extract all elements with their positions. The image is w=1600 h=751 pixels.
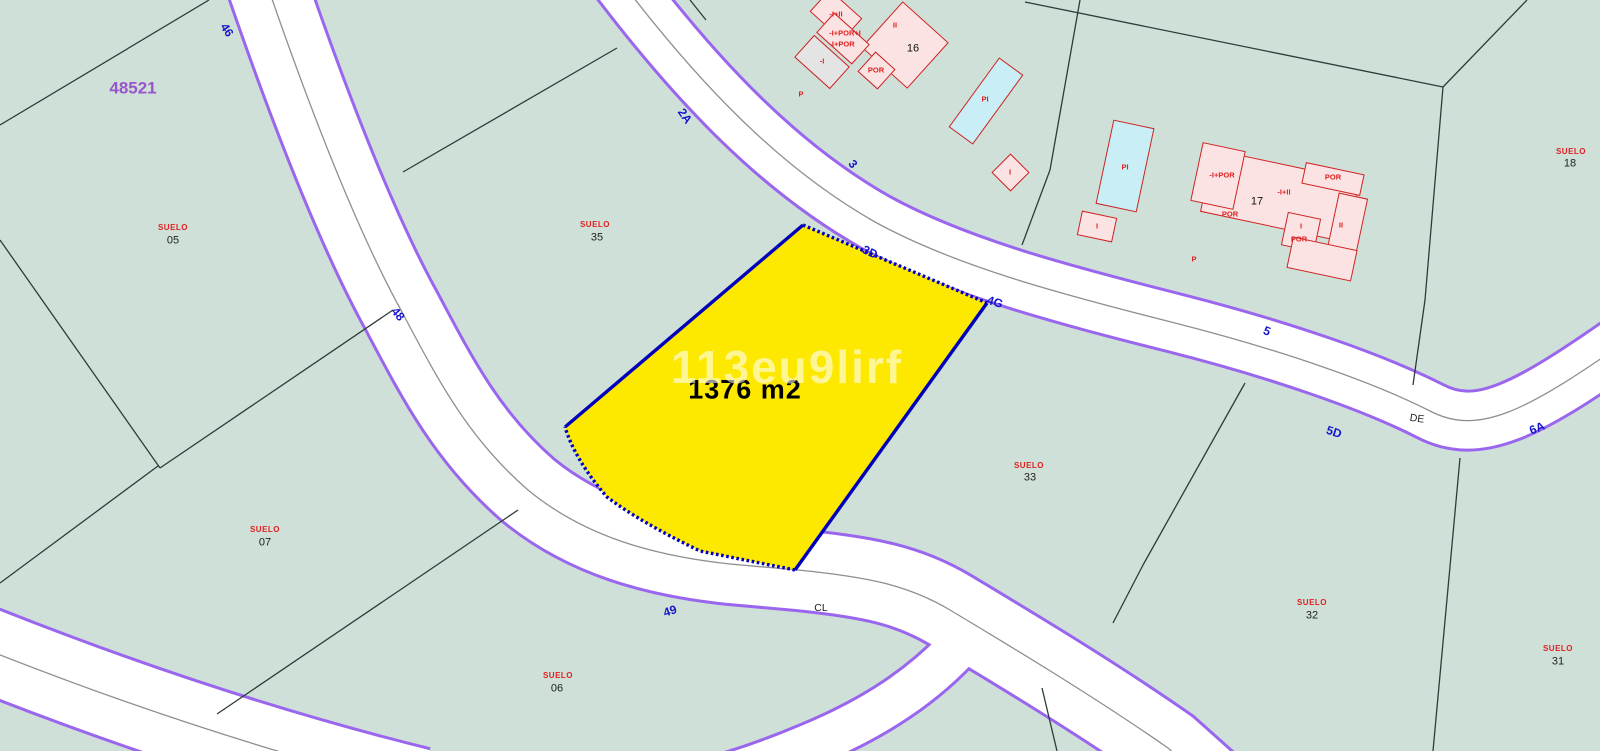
building-label: PI <box>981 95 988 103</box>
parcel-type: SUELO <box>1297 599 1327 607</box>
building-label: -I+POR+I <box>829 29 861 37</box>
building-label: -I+II <box>829 10 842 18</box>
watermark: 113eu9lirf <box>671 344 903 390</box>
parcel-number: 35 <box>591 233 603 244</box>
building-label: I <box>1009 168 1011 176</box>
building-label: II <box>1339 221 1343 229</box>
parcel-type: SUELO <box>1014 462 1044 470</box>
parcel-number: 31 <box>1552 657 1564 668</box>
parcel-type: SUELO <box>1543 645 1573 653</box>
building-label: POR <box>1291 235 1307 243</box>
building-label: P <box>1191 255 1196 263</box>
building-label: I <box>1096 222 1098 230</box>
block-number: 48521 <box>109 80 156 97</box>
map-canvas[interactable]: 48521SUELO05SUELO35SUELO07SUELO06SUELO33… <box>0 0 1600 751</box>
parcel-number: 18 <box>1564 159 1576 170</box>
parcel-number: 06 <box>551 684 563 695</box>
building-number: 17 <box>1251 197 1263 208</box>
building-label: P <box>798 90 803 98</box>
building-label: PI <box>1121 163 1128 171</box>
building-number: 16 <box>907 44 919 55</box>
building-label: POR <box>1325 173 1341 181</box>
parcel-number: 32 <box>1306 611 1318 622</box>
parcel-type: SUELO <box>580 221 610 229</box>
street-name: DE <box>1409 413 1425 425</box>
building-label: -I+POR <box>829 40 854 48</box>
parcel-type: SUELO <box>158 224 188 232</box>
parcel-type: SUELO <box>250 526 280 534</box>
building-label: POR <box>868 66 884 74</box>
parcel-type: SUELO <box>1556 148 1586 156</box>
parcel-type: SUELO <box>543 672 573 680</box>
parcel-number: 33 <box>1024 473 1036 484</box>
street-name: CL <box>814 603 827 614</box>
building-label: POR <box>1222 210 1238 218</box>
parcel-number: 05 <box>167 236 179 247</box>
parcel-number: 07 <box>259 538 271 549</box>
building-label: -I <box>820 57 825 65</box>
building-label: II <box>893 21 897 29</box>
building-label: -I+POR <box>1209 171 1234 179</box>
building-label: -I+II <box>1277 188 1290 196</box>
building-label: I <box>1300 222 1302 230</box>
